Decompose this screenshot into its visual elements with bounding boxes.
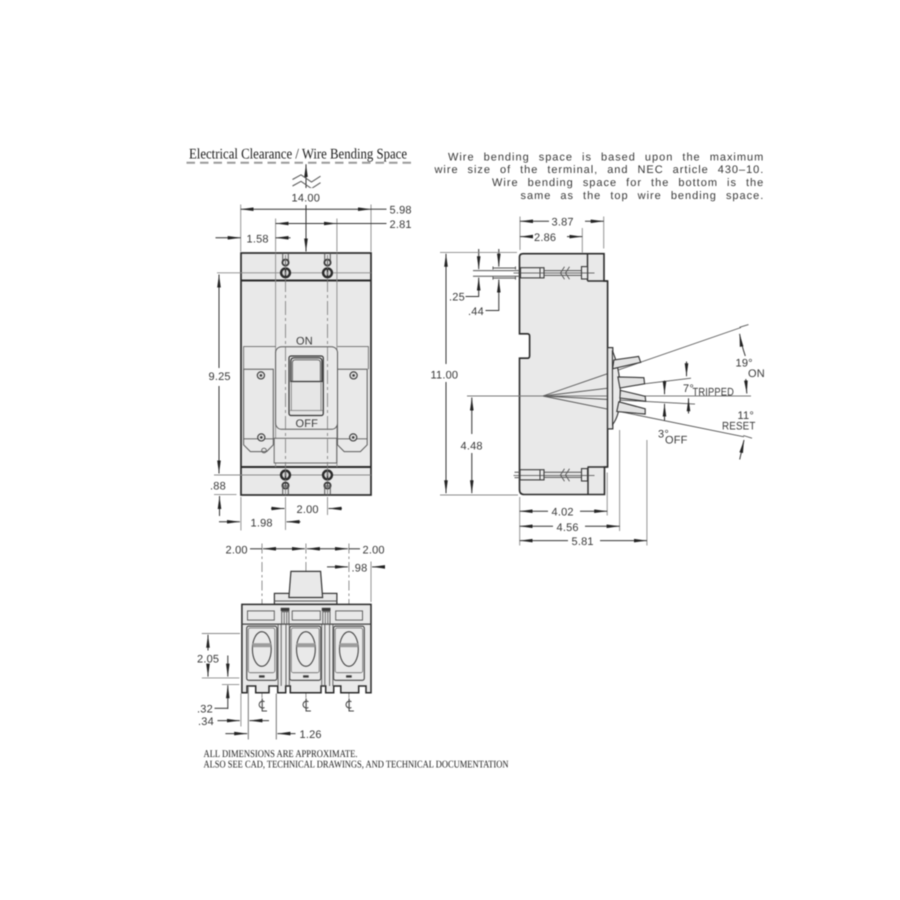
svg-text:5.81: 5.81 bbox=[572, 536, 594, 548]
svg-text:1.98: 1.98 bbox=[251, 517, 273, 529]
svg-text:4.56: 4.56 bbox=[557, 522, 579, 534]
svg-text:Electrical Clearance / Wire Be: Electrical Clearance / Wire Bending Spac… bbox=[189, 147, 407, 163]
svg-text:.32: .32 bbox=[197, 704, 213, 716]
svg-text:Wire bending space is based up: Wire bending space is based upon the max… bbox=[448, 152, 764, 164]
svg-text:1.26: 1.26 bbox=[300, 729, 322, 741]
svg-text:Wire bending space for the bot: Wire bending space for the bottom is the bbox=[492, 177, 764, 189]
svg-text:2.05: 2.05 bbox=[197, 654, 219, 666]
svg-text:.88: .88 bbox=[210, 481, 226, 493]
svg-text:2.00: 2.00 bbox=[363, 545, 385, 557]
svg-text:5.98: 5.98 bbox=[390, 205, 412, 217]
svg-text:3.87: 3.87 bbox=[552, 217, 574, 229]
svg-text:TRIPPED: TRIPPED bbox=[693, 387, 735, 399]
svg-text:ALL DIMENSIONS ARE APPROXIMATE: ALL DIMENSIONS ARE APPROXIMATE. bbox=[204, 749, 358, 760]
svg-text:.44: .44 bbox=[468, 306, 484, 318]
svg-text:4.48: 4.48 bbox=[461, 441, 483, 453]
svg-text:2.86: 2.86 bbox=[534, 232, 556, 244]
svg-text:.98: .98 bbox=[352, 562, 368, 574]
svg-text:2.00: 2.00 bbox=[297, 504, 319, 516]
svg-text:.25: .25 bbox=[449, 292, 465, 304]
svg-text:RESET: RESET bbox=[722, 421, 756, 433]
svg-text:ON: ON bbox=[296, 336, 313, 348]
svg-text:2.81: 2.81 bbox=[390, 219, 412, 231]
svg-text:14.00: 14.00 bbox=[292, 193, 321, 205]
svg-text:.34: .34 bbox=[198, 716, 214, 728]
svg-text:OFF: OFF bbox=[665, 435, 688, 447]
svg-text:9.25: 9.25 bbox=[209, 371, 231, 383]
svg-text:1.58: 1.58 bbox=[247, 233, 269, 245]
svg-text:wire size of the terminal, and: wire size of the terminal, and NEC artic… bbox=[434, 164, 764, 176]
svg-text:same as the top wire bending s: same as the top wire bending space. bbox=[521, 190, 764, 202]
svg-text:OFF: OFF bbox=[296, 418, 319, 430]
svg-text:4.02: 4.02 bbox=[552, 507, 574, 519]
svg-text:ON: ON bbox=[748, 368, 765, 380]
svg-text:11.00: 11.00 bbox=[431, 370, 459, 382]
svg-text:ALSO SEE CAD, TECHNICAL DRAWIN: ALSO SEE CAD, TECHNICAL DRAWINGS, AND TE… bbox=[204, 760, 509, 771]
svg-text:2.00: 2.00 bbox=[226, 545, 248, 557]
